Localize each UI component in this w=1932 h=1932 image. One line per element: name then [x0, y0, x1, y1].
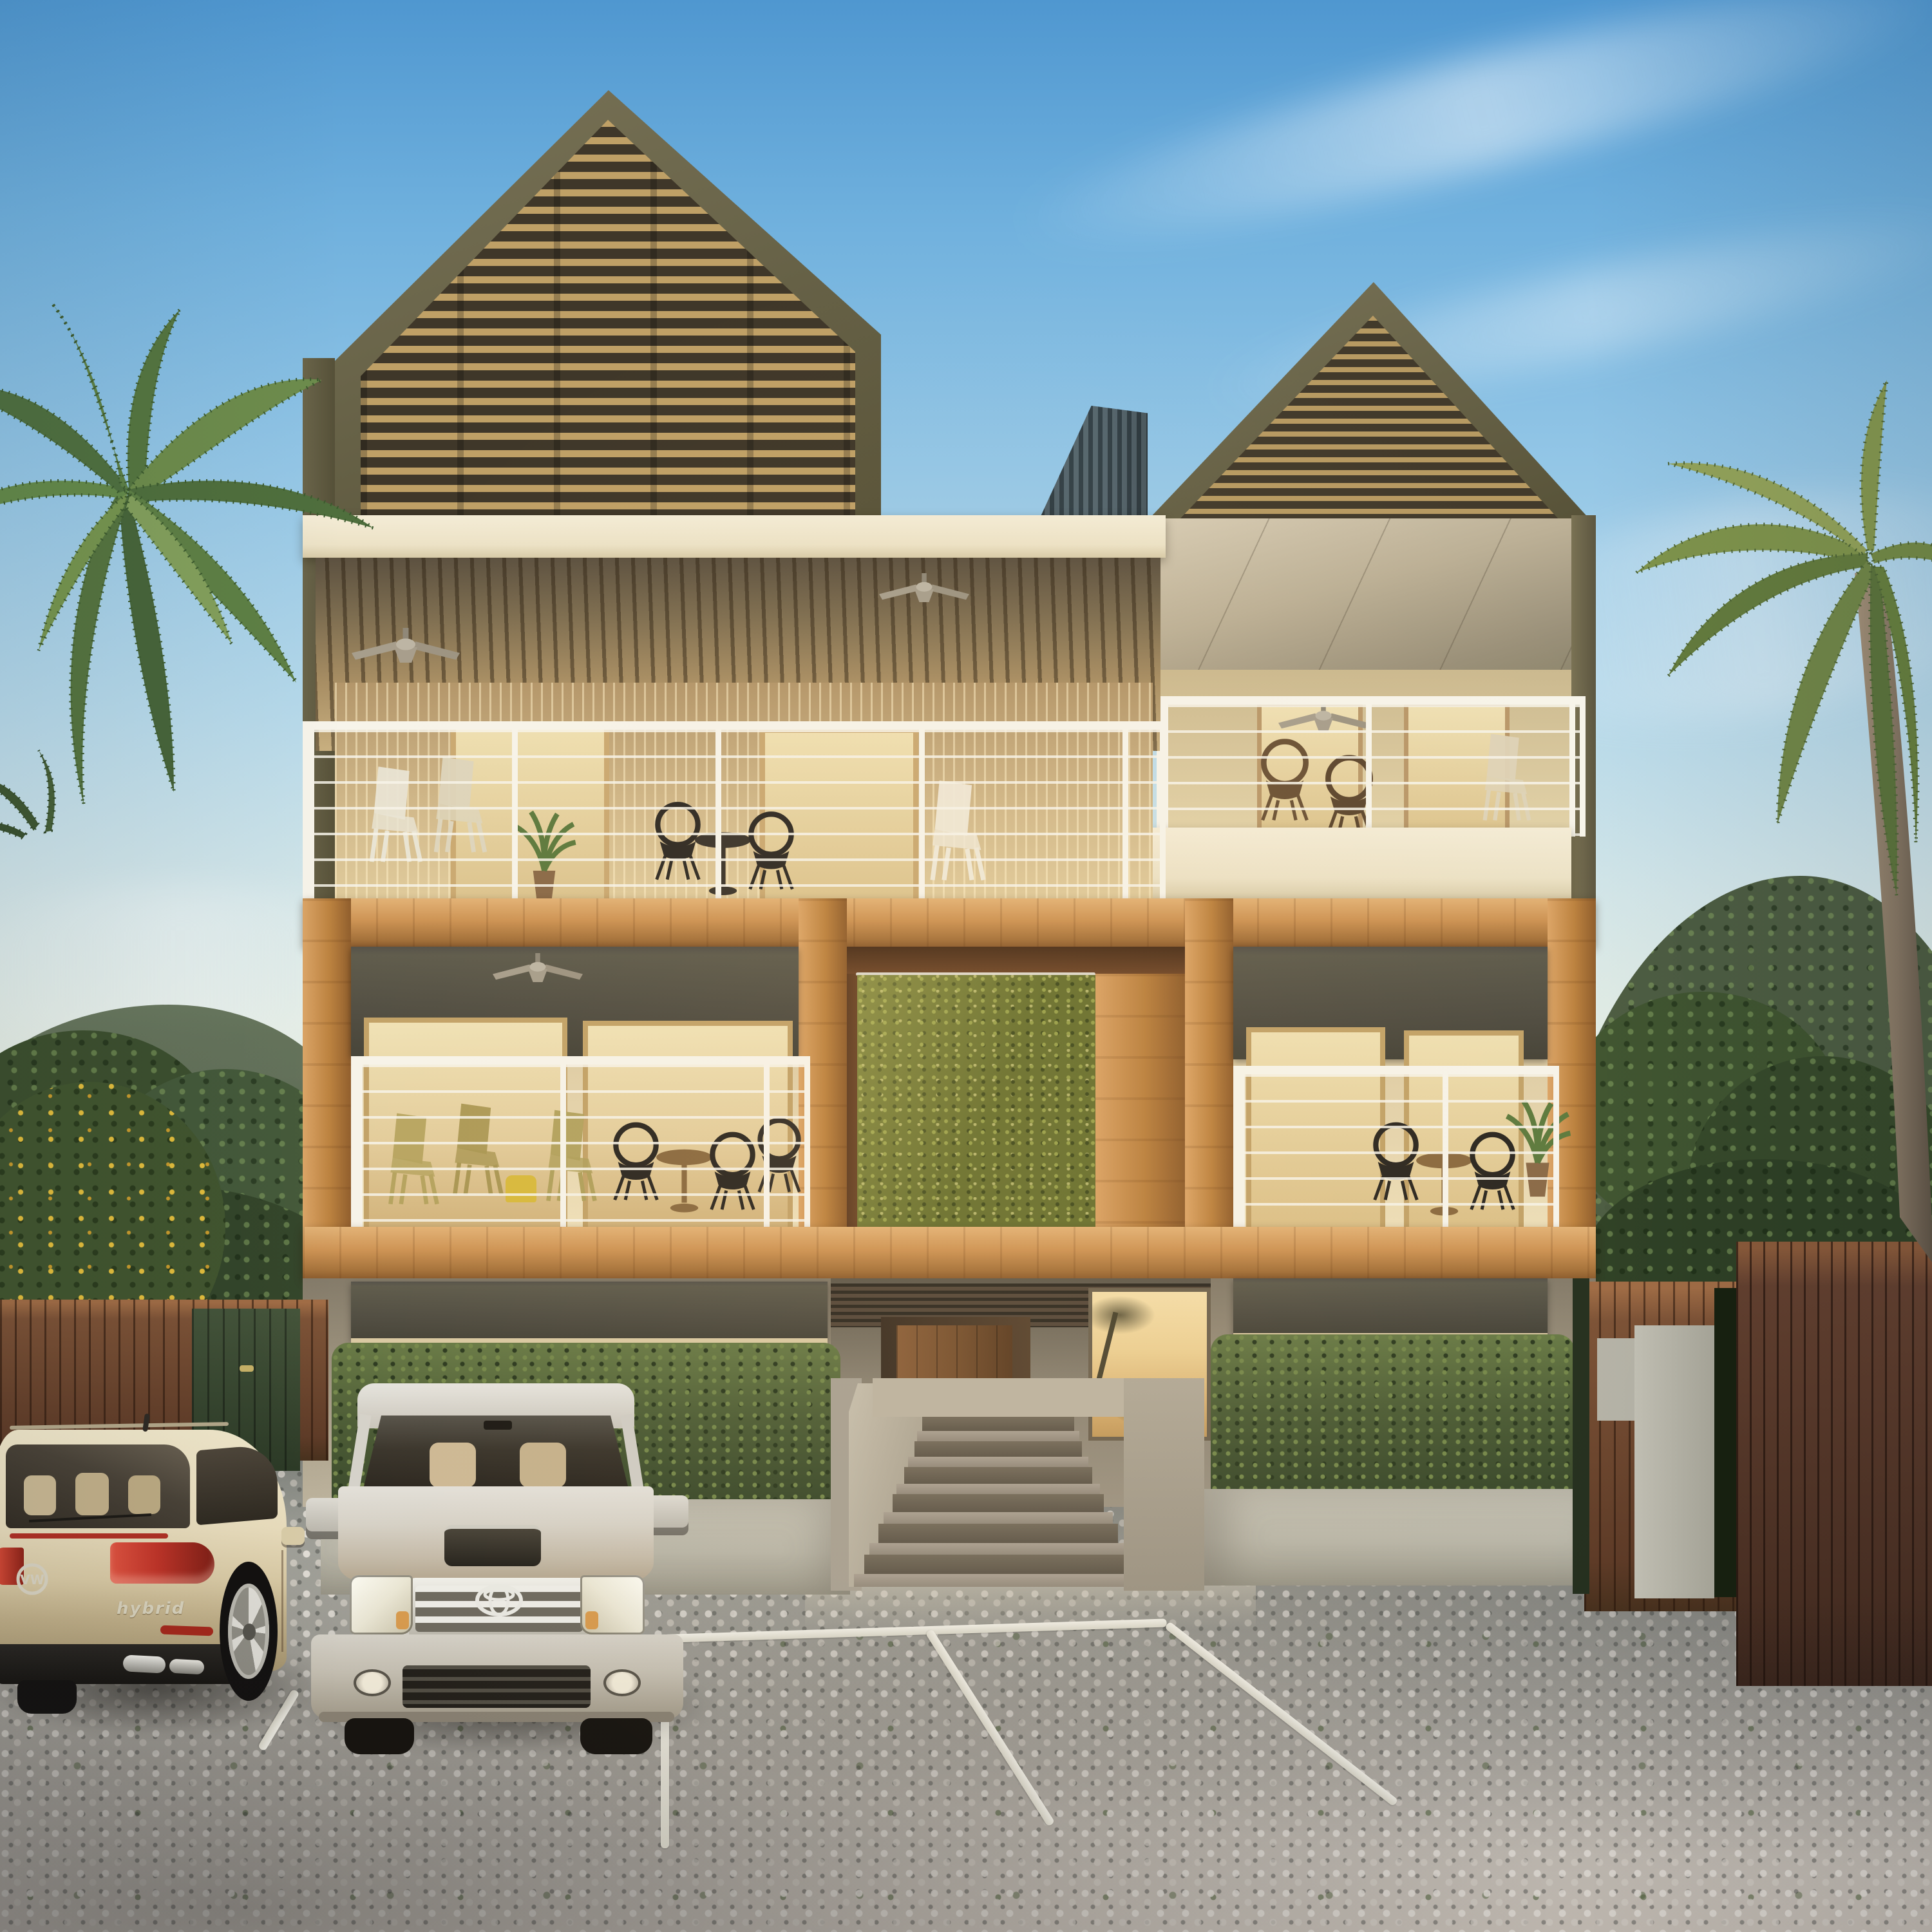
- roof-rails: [10, 1422, 229, 1430]
- headlight-left: [350, 1575, 413, 1634]
- rear-window: [6, 1444, 190, 1528]
- door-seam: [281, 1550, 283, 1652]
- stair-riser: [904, 1467, 1092, 1484]
- stair-tread: [896, 1484, 1100, 1494]
- exhaust-tip: [169, 1659, 204, 1675]
- timber-band-bottom: [303, 1227, 1596, 1278]
- vw-badge-letters: VW: [20, 1572, 44, 1587]
- seat-headrest: [75, 1473, 109, 1515]
- stair-tread: [854, 1574, 1142, 1587]
- stair-riser: [893, 1494, 1104, 1512]
- toyota-emblem: [475, 1583, 524, 1618]
- timber-column: [1185, 898, 1233, 1278]
- vw-suv: VW hybrid: [0, 1414, 309, 1723]
- timber-column: [303, 898, 351, 1278]
- turn-signal: [396, 1611, 409, 1629]
- hood-scoop: [444, 1525, 541, 1566]
- railing-third-floor-right: [1157, 696, 1586, 837]
- hedge-right: [1211, 1334, 1575, 1495]
- seat: [520, 1443, 566, 1488]
- windshield: [363, 1416, 629, 1492]
- toyota-hilux-pickup: [299, 1378, 696, 1755]
- stair-riser: [922, 1417, 1074, 1431]
- third-brake-light: [10, 1533, 168, 1539]
- ceiling-fan: [489, 953, 586, 989]
- railing-second-floor-left: [351, 1056, 810, 1238]
- vw-badge: VW: [16, 1563, 48, 1595]
- stair-riser: [914, 1441, 1082, 1457]
- palm-reflection: [1084, 1296, 1155, 1334]
- green-wall-niche: [847, 947, 1185, 1230]
- fog-light: [603, 1669, 641, 1696]
- seat-headrest: [128, 1475, 160, 1514]
- rear-left-tire: [17, 1680, 77, 1714]
- niche-wood-soffit: [847, 947, 1185, 974]
- seat: [430, 1443, 476, 1488]
- taillight-right: [110, 1542, 214, 1584]
- stair-landing: [873, 1378, 1124, 1417]
- front-tire: [580, 1718, 652, 1754]
- stair-tread: [884, 1512, 1113, 1524]
- pillar-grey: [1634, 1325, 1714, 1598]
- headlight-right: [580, 1575, 645, 1634]
- palm-tree-left: [0, 193, 451, 902]
- fog-light: [354, 1669, 391, 1696]
- niche-side-panel: [1095, 974, 1185, 1230]
- architectural-render-scene: VW hybrid: [0, 0, 1932, 1932]
- wheel-hub: [243, 1624, 256, 1640]
- side-window: [196, 1443, 278, 1525]
- front-tire: [345, 1718, 414, 1754]
- fence-post-green: [1573, 1278, 1589, 1594]
- right-tower-slab-band: [1148, 828, 1571, 900]
- lower-grille: [402, 1665, 591, 1708]
- turn-signal: [585, 1611, 598, 1629]
- bumper-reflector: [160, 1625, 213, 1636]
- stair-tread: [869, 1543, 1127, 1555]
- planter-wall-right: [1203, 1489, 1584, 1586]
- exhaust-tip: [122, 1654, 166, 1673]
- rearview-mirror: [484, 1421, 512, 1430]
- living-green-wall: [857, 975, 1095, 1230]
- seat-headrest: [24, 1475, 56, 1515]
- ground-floor-valance: [351, 1282, 828, 1341]
- ceiling-fan: [876, 573, 972, 609]
- stair-riser: [864, 1555, 1132, 1574]
- stair-side-wall: [1124, 1378, 1204, 1591]
- stair-tread: [908, 1457, 1088, 1467]
- timber-band-top: [303, 898, 1596, 947]
- ground-floor-valance: [1233, 1278, 1548, 1336]
- stair-tread: [917, 1431, 1079, 1441]
- hybrid-badge: hybrid: [117, 1599, 185, 1618]
- stair-riser: [878, 1524, 1118, 1543]
- palm-tree-right: [1597, 361, 1932, 1365]
- gate-hardware: [240, 1365, 254, 1372]
- railing-second-floor-right: [1233, 1066, 1559, 1251]
